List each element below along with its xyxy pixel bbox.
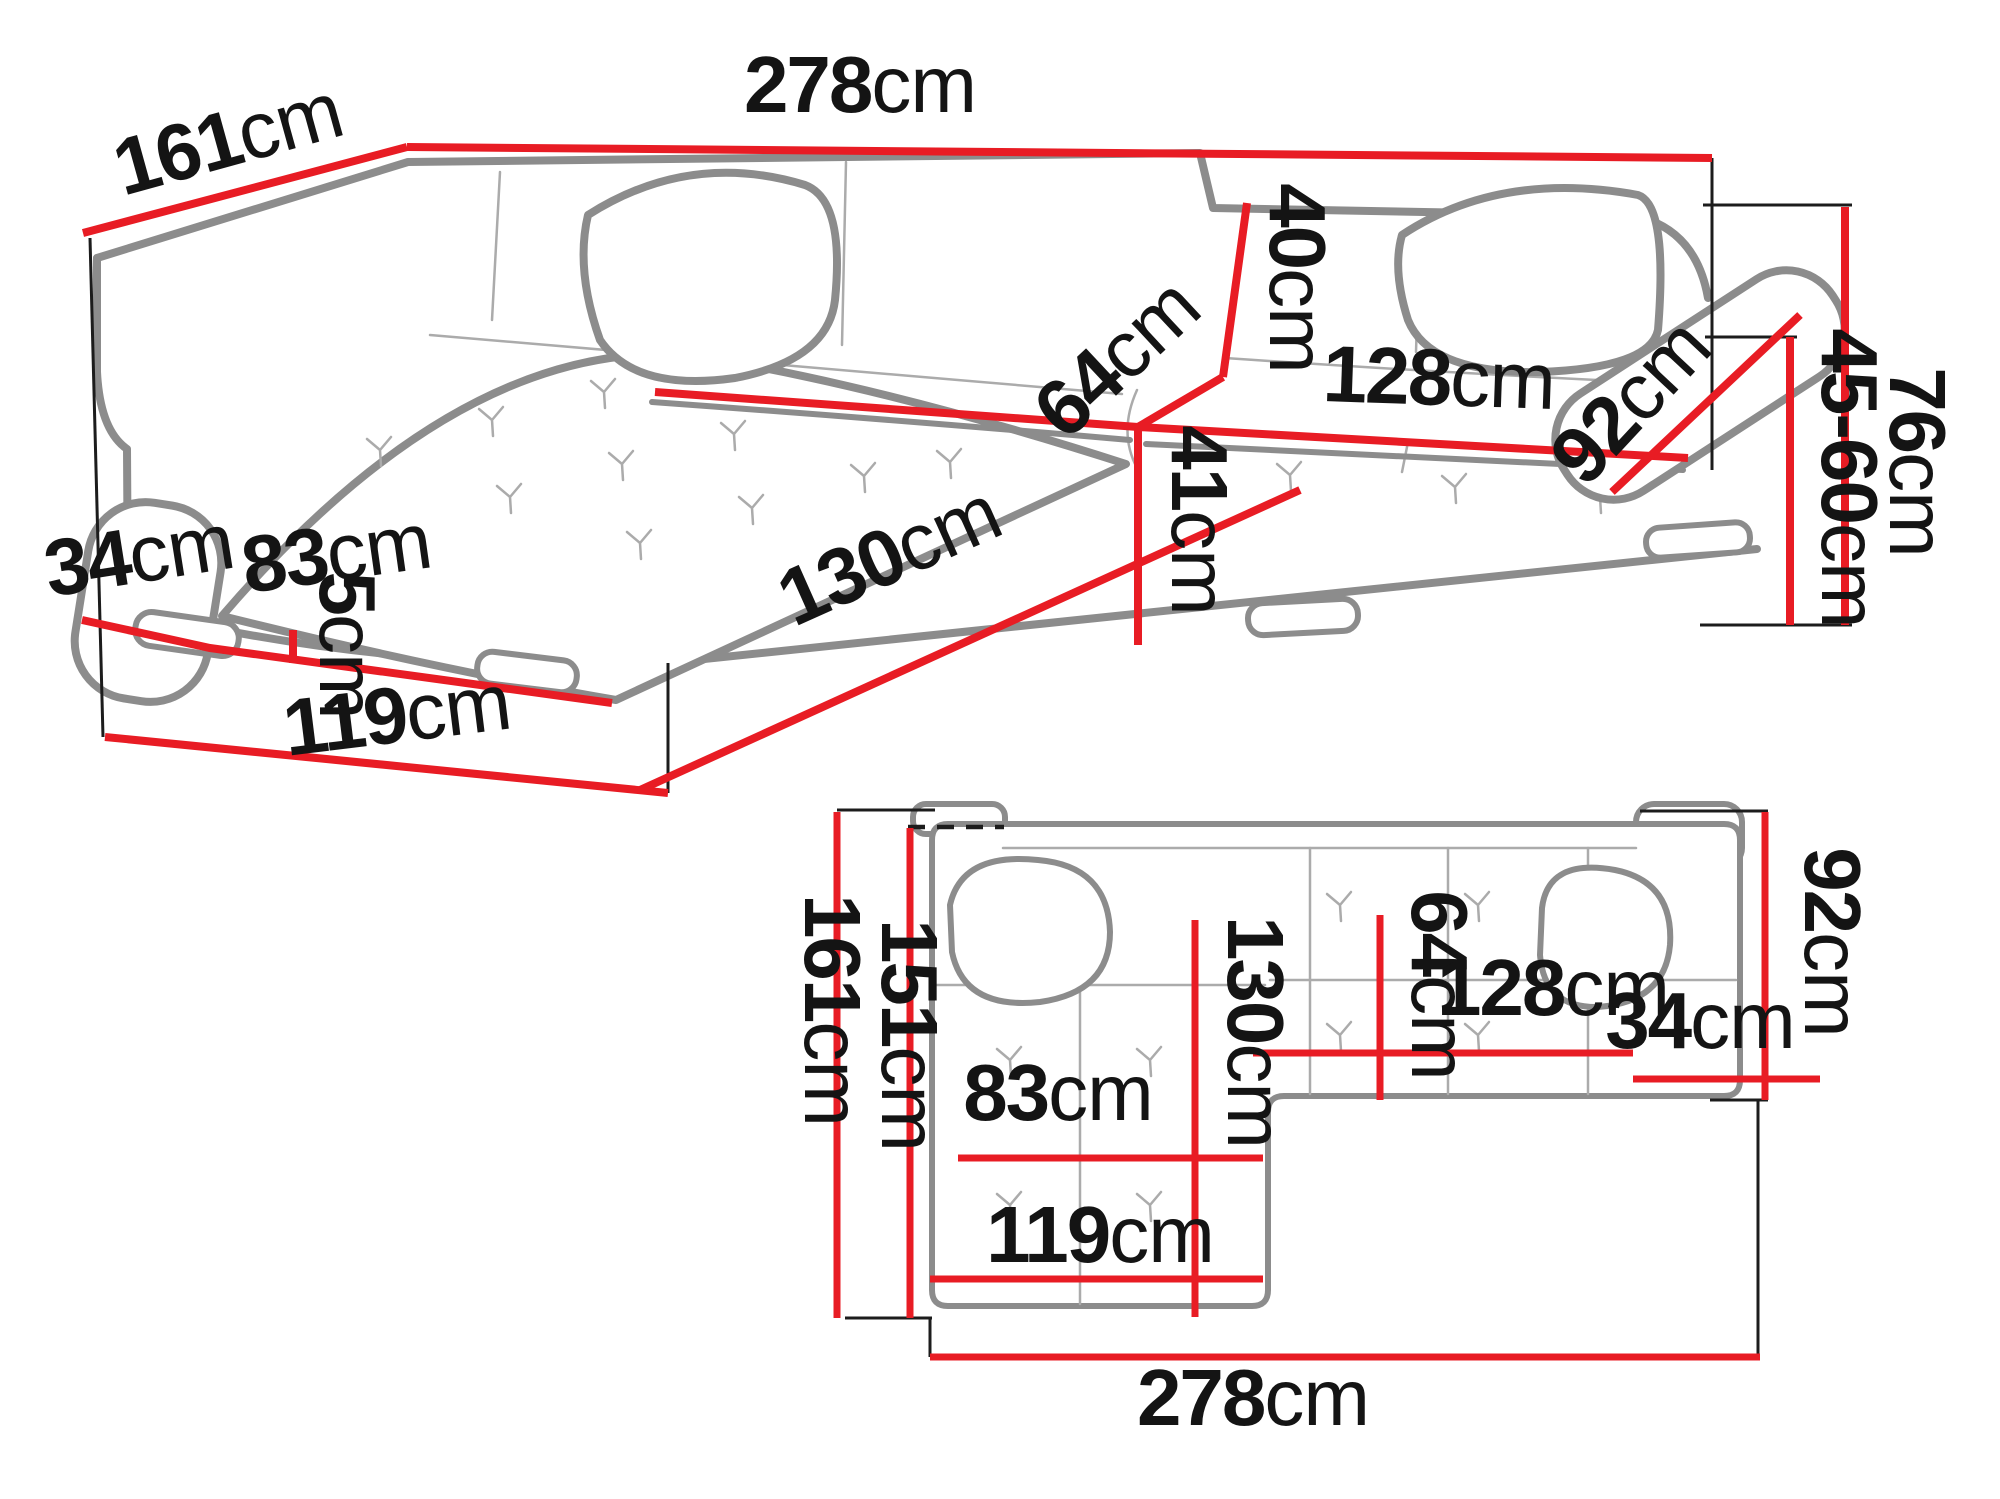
backrest-seam-left: [492, 172, 500, 320]
perspective-view: 161cm 278cm 40cm 64cm 128cm 92cm 76cm 45…: [38, 40, 1962, 793]
plan-dim-label-151: 151cm: [865, 919, 954, 1151]
plan-dim-label-119: 119cm: [986, 1190, 1214, 1279]
plan-pillow-left: [950, 859, 1110, 1003]
backrest-seam-mid: [842, 162, 846, 345]
plan-dim-label-83: 83cm: [963, 1048, 1153, 1137]
plan-dim-label-161: 161cm: [788, 894, 877, 1126]
plan-dim-label-278: 278cm: [1137, 1353, 1369, 1442]
dim-label-41: 41cm: [1155, 425, 1244, 615]
plan-view: 161cm 151cm 130cm 64cm 92cm 128cm 34cm 8…: [788, 804, 1877, 1442]
plan-dim-label-130: 130cm: [1211, 916, 1300, 1148]
sofa-dimension-diagram: 161cm 278cm 40cm 64cm 128cm 92cm 76cm 45…: [0, 0, 2000, 1499]
plan-dim-label-34: 34cm: [1605, 976, 1795, 1065]
pillow-left: [584, 173, 837, 381]
dim-label-45-60: 45-60cm: [1805, 328, 1894, 627]
diagram-canvas: 161cm 278cm 40cm 64cm 128cm 92cm 76cm 45…: [0, 0, 2000, 1499]
dim-label-278: 278cm: [744, 40, 976, 129]
dim-line-40: [1223, 203, 1247, 377]
dim-label-128: 128cm: [1321, 329, 1556, 426]
plan-dim-label-92: 92cm: [1788, 847, 1877, 1037]
